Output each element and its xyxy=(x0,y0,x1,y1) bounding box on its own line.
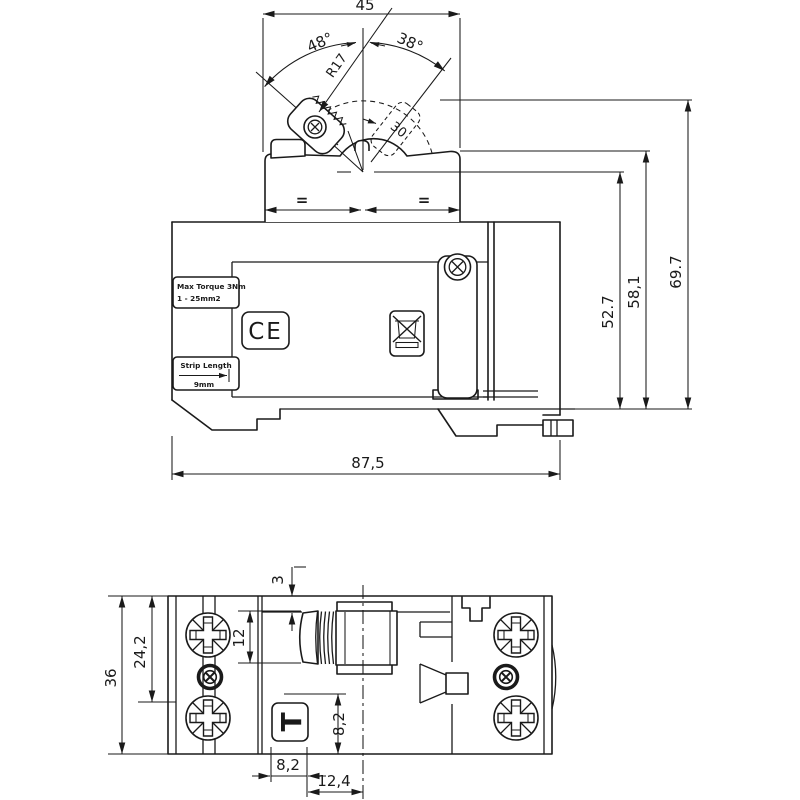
dim-69-7-value: 69.7 xyxy=(667,255,685,288)
dim-8-2h-value: 8,2 xyxy=(276,756,300,774)
dim-36: 36 xyxy=(102,596,168,754)
dim-r17-value: R17 xyxy=(324,51,351,81)
cap-left-tab xyxy=(271,140,305,159)
test-button: T xyxy=(272,703,308,741)
dim-52-7-value: 52.7 xyxy=(599,295,617,328)
dim-12-4: 12,4 xyxy=(308,772,363,792)
torque-label-line2: 1 - 25mm2 xyxy=(177,294,221,303)
toggle-switch-plan xyxy=(300,602,397,674)
dim-58-1-value: 58,1 xyxy=(625,275,643,308)
bottom-view: T 36 24,2 12 xyxy=(102,567,556,799)
din-clip-spring xyxy=(543,420,573,436)
ce-mark-text: CE xyxy=(248,319,283,345)
dim-12-value: 12 xyxy=(230,628,248,647)
rcd-dimension-drawing: Max Torque 3Nm 1 - 25mm2 Strip Length 9m… xyxy=(0,0,800,800)
technical-drawing-page: Max Torque 3Nm 1 - 25mm2 Strip Length 9m… xyxy=(0,0,800,800)
test-button-label: T xyxy=(275,712,308,731)
dim-radius-r17: R17 xyxy=(319,8,392,112)
dim-8-2v-value: 8,2 xyxy=(330,712,348,736)
strip-length-text: Strip Length xyxy=(180,361,231,370)
dim-38deg-value: 38° xyxy=(394,29,426,56)
equal-mark-left: = xyxy=(296,191,309,209)
torque-label: Max Torque 3Nm 1 - 25mm2 xyxy=(173,277,246,308)
dim-12-4-value: 12,4 xyxy=(317,772,350,790)
dim-heights-right: 52.7 58,1 69.7 xyxy=(374,100,692,409)
dim-24-2-value: 24,2 xyxy=(131,635,149,668)
dim-45-value: 45 xyxy=(355,0,374,14)
strip-length-label: Strip Length 9mm xyxy=(173,357,239,390)
dim-width-87-5: 87,5 xyxy=(172,436,560,480)
ce-mark: CE xyxy=(242,312,289,349)
dim-3-value: 3 xyxy=(269,575,287,585)
dim-angle-38: 38° xyxy=(370,29,445,71)
handle-slot xyxy=(355,141,369,152)
strip-length-value: 9mm xyxy=(194,380,215,389)
dim-87-5-value: 87,5 xyxy=(351,454,384,472)
equal-mark-right: = xyxy=(418,191,431,209)
side-view: Max Torque 3Nm 1 - 25mm2 Strip Length 9m… xyxy=(172,0,692,480)
weee-symbol xyxy=(390,311,424,356)
torque-label-line1: Max Torque 3Nm xyxy=(177,282,246,291)
dim-36-value: 36 xyxy=(102,668,120,687)
terminal-screw-column xyxy=(438,254,477,398)
dim-48deg-value: 48° xyxy=(304,29,336,56)
